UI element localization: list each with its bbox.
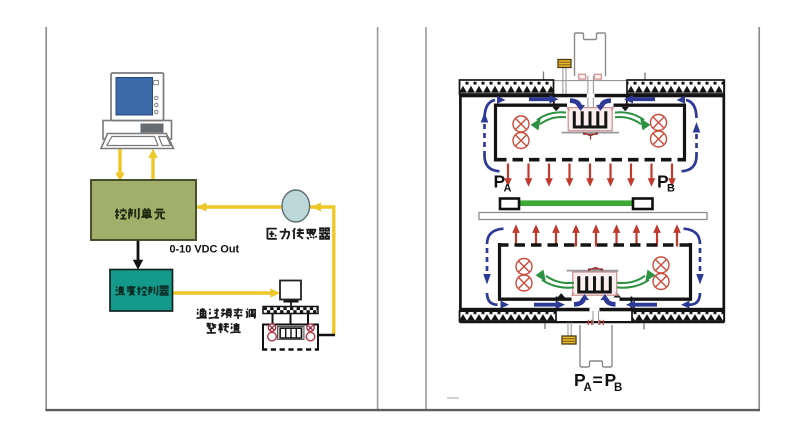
svg-text:B: B — [614, 382, 622, 394]
svg-text:=: = — [593, 370, 603, 390]
svg-text:B: B — [667, 183, 675, 195]
svg-text:0-10 VDC Out: 0-10 VDC Out — [170, 243, 240, 255]
svg-text:A: A — [584, 382, 592, 394]
svg-text:A: A — [504, 183, 512, 195]
